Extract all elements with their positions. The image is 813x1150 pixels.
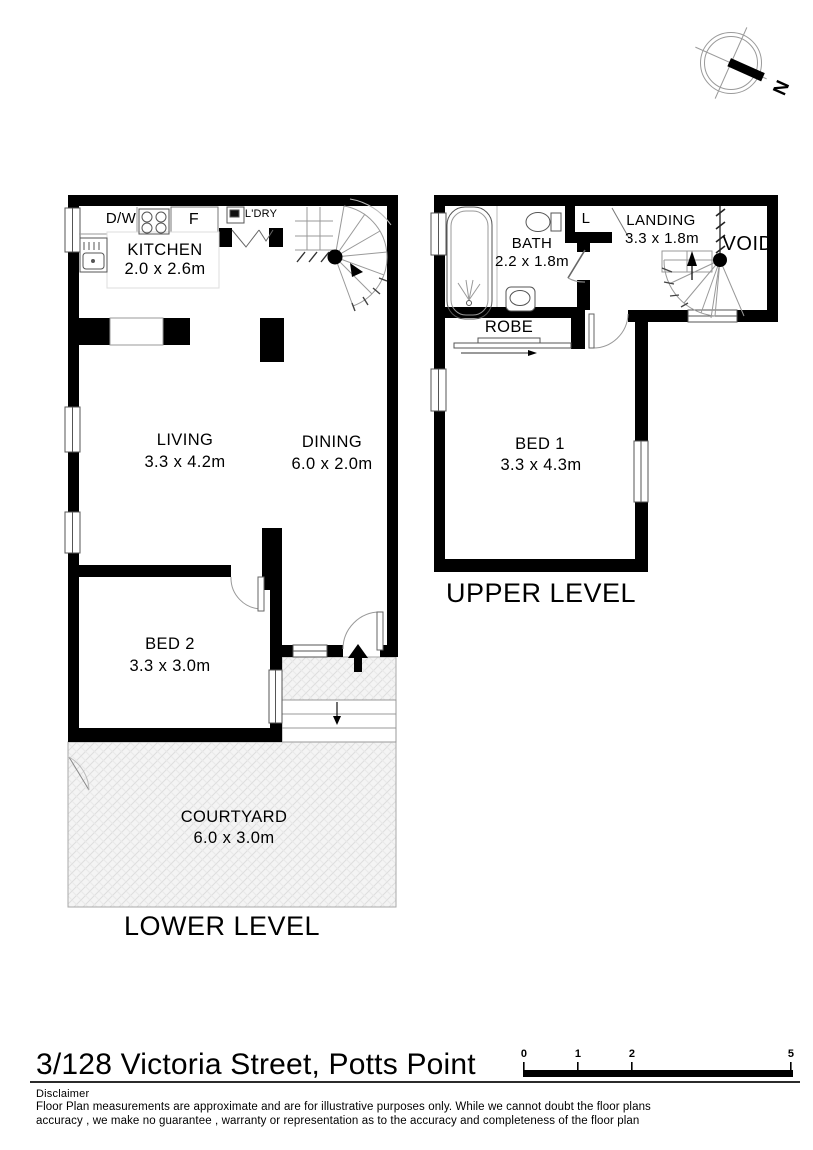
disclaimer-title: Disclaimer: [36, 1088, 89, 1100]
bed2-dims: 3.3 x 3.0m: [129, 657, 210, 675]
robe-sliding-door: [454, 338, 571, 356]
living-window-2: [65, 512, 80, 553]
footer-divider: [30, 1081, 800, 1083]
compass-icon: N: [680, 12, 793, 115]
compass-north-label: N: [768, 77, 793, 98]
scale-bar: [523, 1062, 793, 1077]
bathtub-icon: [447, 207, 492, 319]
lower-level-title: LOWER LEVEL: [124, 912, 320, 942]
upper-level-title: UPPER LEVEL: [446, 579, 636, 609]
disclaimer-line-1: Floor Plan measurements are approximate …: [36, 1101, 651, 1114]
bed1-door: [589, 314, 628, 348]
dining-dims: 6.0 x 2.0m: [291, 455, 372, 473]
toilet-icon: [526, 213, 561, 232]
entry-steps: [282, 700, 396, 742]
address-title: 3/128 Victoria Street, Potts Point: [36, 1048, 476, 1081]
living-name: LIVING: [157, 431, 214, 449]
laundry-bifold-doors: [232, 230, 273, 247]
scale-tick-1: 1: [575, 1048, 581, 1060]
bath-name: BATH: [512, 236, 553, 253]
dishwasher-label: D/W: [106, 211, 136, 228]
bed1-left-window: [431, 369, 446, 411]
kitchen-name: KITCHEN: [127, 241, 202, 259]
living-window-1: [65, 407, 80, 452]
scale-tick-2: 2: [629, 1048, 635, 1060]
laundry-label: L'DRY: [245, 208, 277, 220]
robe-label: ROBE: [485, 318, 533, 336]
kitchen-dims: 2.0 x 2.6m: [124, 260, 205, 278]
courtyard-dims: 6.0 x 3.0m: [193, 829, 274, 847]
bed1-name: BED 1: [515, 435, 565, 453]
hall-window: [293, 645, 327, 657]
washing-machine-icon: [227, 207, 244, 223]
bath-dims: 2.2 x 1.8m: [495, 254, 569, 271]
bed2-door: [231, 577, 264, 611]
bed2-name: BED 2: [145, 635, 195, 653]
basin-icon: [506, 287, 535, 311]
kitchen-window: [65, 208, 80, 252]
spiral-stair-lower: [295, 199, 391, 311]
living-dims: 3.3 x 4.2m: [144, 453, 225, 471]
floor-plan-page: N D/W F L'DRY KITCHEN 2.0 x 2.6m LIVING …: [0, 0, 813, 1150]
disclaimer-line-2: accuracy , we make no guarantee , warran…: [36, 1115, 639, 1128]
bath-window: [431, 213, 446, 255]
bath-door: [568, 250, 585, 282]
bed1-right-window: [634, 441, 648, 502]
bed2-window: [269, 670, 282, 723]
landing-dims: 3.3 x 1.8m: [625, 231, 699, 248]
entry-door: [343, 612, 383, 650]
scale-tick-0: 0: [521, 1048, 527, 1060]
courtyard-area: [68, 657, 396, 907]
landing-name: LANDING: [626, 213, 695, 230]
fridge-label: F: [189, 211, 199, 229]
sink-icon: [80, 238, 107, 272]
stove-icon: [139, 209, 169, 234]
dining-name: DINING: [302, 433, 362, 451]
linen-label: L: [582, 211, 591, 228]
scale-tick-5: 5: [788, 1048, 794, 1060]
floor-plan-drawing: N: [0, 0, 813, 1150]
courtyard-name: COURTYARD: [181, 808, 288, 826]
bed1-dims: 3.3 x 4.3m: [500, 456, 581, 474]
void-label: VOID: [723, 233, 774, 255]
